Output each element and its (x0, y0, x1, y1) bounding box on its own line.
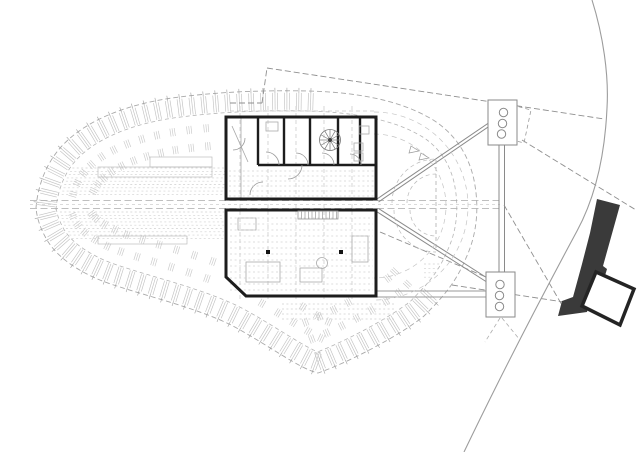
blueprint-page (0, 0, 640, 452)
column-dot (266, 250, 270, 254)
column-dot (339, 250, 343, 254)
canvas-background (0, 0, 640, 452)
site-plan-drawing (0, 0, 640, 452)
spiral-stair-hub (328, 138, 332, 142)
